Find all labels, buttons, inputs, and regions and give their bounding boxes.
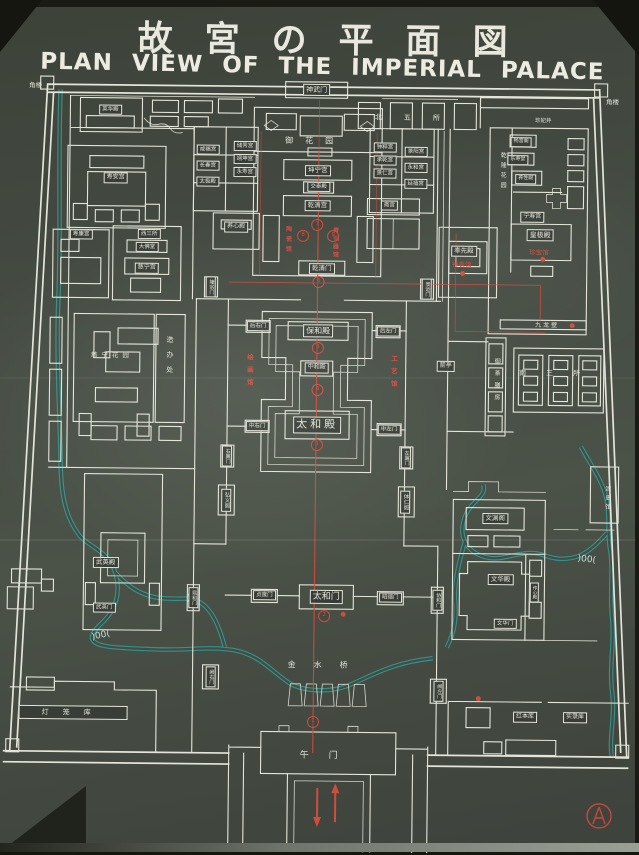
label-taihedian: 太和殿 bbox=[293, 416, 341, 433]
label-longzongmen: 隆宗门 bbox=[206, 276, 216, 297]
label-ningshougong: 宁寿宫 bbox=[520, 212, 544, 223]
route-marker-1: 1 bbox=[307, 716, 319, 728]
route-marker-7: 7 bbox=[311, 219, 323, 231]
label-qianqingmen: 乾清门 bbox=[309, 263, 335, 275]
label-houyoumen: 后右门 bbox=[247, 321, 270, 332]
label-yikungong: 翊坤宫 bbox=[234, 154, 257, 165]
label-zhongyoumen: 中右门 bbox=[246, 421, 269, 432]
label-cininggong: 慈宁宫 bbox=[135, 263, 159, 274]
label-wenyuange: 文渊阁 bbox=[482, 513, 508, 525]
label-zhongcuigong: 钟粹宫 bbox=[374, 142, 397, 153]
gate-direction-arrows bbox=[313, 783, 339, 827]
label-jiaolou-tl: 角楼 bbox=[29, 82, 42, 90]
label-jingyanggong: 景阳宫 bbox=[405, 147, 428, 158]
label-jingrengong: 景仁宫 bbox=[373, 168, 396, 179]
label-wumen: 午门 bbox=[300, 751, 358, 762]
label-taijidian: 太极殿 bbox=[196, 177, 219, 188]
label-jiaolou-tr: 角楼 bbox=[606, 99, 619, 107]
route-marker-9: 9 bbox=[327, 230, 339, 242]
label-youyimen: 右翼门 bbox=[222, 445, 232, 466]
label-yuchashanfang: 御茶膳房 bbox=[492, 358, 499, 406]
photo-bottom-edge bbox=[0, 843, 639, 852]
label-zuoyimen: 左翼门 bbox=[401, 447, 411, 468]
label-shenwumen: 神武门 bbox=[303, 84, 330, 96]
label-zhendumen: 贞度门 bbox=[253, 590, 276, 601]
photo-top-edge bbox=[0, 0, 639, 7]
route-marker-8: 8 bbox=[297, 230, 309, 242]
sight-dot bbox=[476, 696, 481, 701]
label-xianfugong: 咸福宫 bbox=[197, 145, 220, 156]
label-nansansuo: 南三所 bbox=[519, 369, 600, 378]
sight-dot bbox=[460, 271, 465, 276]
label-jiaotaidian: 交泰殿 bbox=[307, 182, 330, 193]
label-zhaodemen: 昭德门 bbox=[379, 592, 402, 603]
label-yangxingdian: 养性殿 bbox=[515, 174, 536, 184]
label-zhenbaoguan: 珍宝馆 bbox=[529, 249, 549, 257]
label-houzuomen: 后左门 bbox=[377, 326, 400, 337]
label-cininghuayuan: 慈宁花园 bbox=[91, 352, 133, 360]
label-chengqiangong: 承乾宫 bbox=[374, 155, 397, 166]
label-xiehemen: 协和门 bbox=[432, 590, 442, 611]
label-wenhuamen: 文华门 bbox=[494, 619, 517, 630]
route-marker-4: 4 bbox=[311, 384, 323, 396]
label-qingshiguan: 清史馆 bbox=[603, 485, 610, 512]
photo-corner-shadow bbox=[593, 0, 639, 56]
label-zhaigong: 斋宫 bbox=[381, 200, 398, 210]
label-tirenge: 体仁阁 bbox=[400, 491, 411, 514]
label-yanxigong: 延禧宫 bbox=[404, 179, 427, 190]
label-yonghegong: 永和宫 bbox=[405, 163, 428, 174]
sight-dot bbox=[570, 323, 575, 328]
label-jinshuiqiao: 金水桥 bbox=[288, 660, 366, 670]
photo-right-edge bbox=[635, 0, 639, 852]
walls-layer bbox=[3, 76, 636, 855]
bridge-mark: )00( bbox=[577, 554, 597, 566]
label-jingyunmen: 景运门 bbox=[422, 279, 432, 300]
label-xisansuo: 西三所 bbox=[138, 229, 161, 240]
label-jiulongbi: 九龙壁 bbox=[535, 323, 559, 330]
label-huangjidian: 皇极殿 bbox=[527, 229, 554, 241]
route-marker-5: 5 bbox=[312, 342, 324, 354]
label-huihuaguan: 绘画馆 bbox=[245, 353, 253, 391]
label-hongbenku: 红本库 bbox=[513, 712, 537, 723]
label-zhongzuomen: 中左门 bbox=[378, 424, 401, 435]
sight-dot bbox=[341, 612, 346, 617]
compass-logo bbox=[587, 804, 611, 828]
label-chuanxindian: 传心殿 bbox=[530, 582, 539, 602]
label-qianlonghuayuan: 乾隆花园 bbox=[498, 152, 505, 192]
label-yongshougong: 永寿宫 bbox=[233, 167, 256, 178]
label-baohedian: 保和殿 bbox=[303, 324, 333, 338]
route-marker-6: 6 bbox=[313, 276, 325, 288]
label-dafotang: 大佛堂 bbox=[136, 242, 159, 253]
label-wuyingmen: 武英门 bbox=[93, 602, 116, 613]
label-yinghuadian: 英华殿 bbox=[99, 105, 122, 116]
map-content: 故宮の平面図 PLAN VIEW OF THE IMPERIAL PALACE bbox=[0, 0, 639, 855]
label-qianqinggong: 乾清宫 bbox=[305, 200, 331, 212]
label-xihemen: 熙和门 bbox=[188, 587, 198, 608]
label-taociguan: 陶瓷馆 bbox=[283, 226, 290, 256]
label-beiwusuo: 北五所 bbox=[375, 114, 462, 123]
label-quezuomen: 阙左门 bbox=[433, 681, 443, 702]
label-yuhuayuan: 御花园 bbox=[285, 136, 345, 146]
label-wenhuadian: 文华殿 bbox=[488, 574, 514, 586]
route-marker-2: 2 bbox=[318, 610, 330, 622]
label-gongyiguan: 工艺馆 bbox=[389, 355, 397, 393]
label-queyoumen: 阙右门 bbox=[205, 666, 215, 687]
label-changchungong: 长春宫 bbox=[197, 161, 220, 172]
label-jianting: 箭亭 bbox=[437, 361, 455, 372]
label-kunninggong: 坤宁宫 bbox=[305, 165, 331, 177]
label-shiluku: 实录库 bbox=[563, 712, 587, 723]
label-changyinge: 畅音阁 bbox=[511, 137, 532, 147]
label-zhongbiaoguan: 钟表馆 bbox=[452, 262, 472, 270]
label-shouangong: 寿安宫 bbox=[104, 172, 128, 183]
label-shoukanggong: 寿康宫 bbox=[70, 229, 93, 240]
label-wuyingdian: 武英殿 bbox=[93, 557, 119, 569]
label-taihemen: 太和门 bbox=[310, 590, 343, 605]
route-marker-3: 3 bbox=[311, 439, 323, 451]
label-zhonghedian: 中和殿 bbox=[305, 362, 329, 373]
label-zaobanchu: 造办处 bbox=[166, 336, 175, 381]
label-chuxiugong: 储秀宫 bbox=[234, 141, 257, 152]
photo-corner-shadow bbox=[0, 0, 42, 52]
label-hongyige: 弘义阁 bbox=[221, 489, 232, 512]
label-leshoutang: 乐寿堂 bbox=[507, 155, 528, 165]
label-denglongku: 灯笼库 bbox=[19, 705, 128, 720]
label-fengxiandian: 奉先殿 bbox=[451, 246, 477, 258]
label-yangxindian: 养心殿 bbox=[224, 222, 248, 233]
label-zhenfeijing: 珍妃井 bbox=[535, 118, 552, 124]
sight-dot bbox=[540, 257, 545, 262]
